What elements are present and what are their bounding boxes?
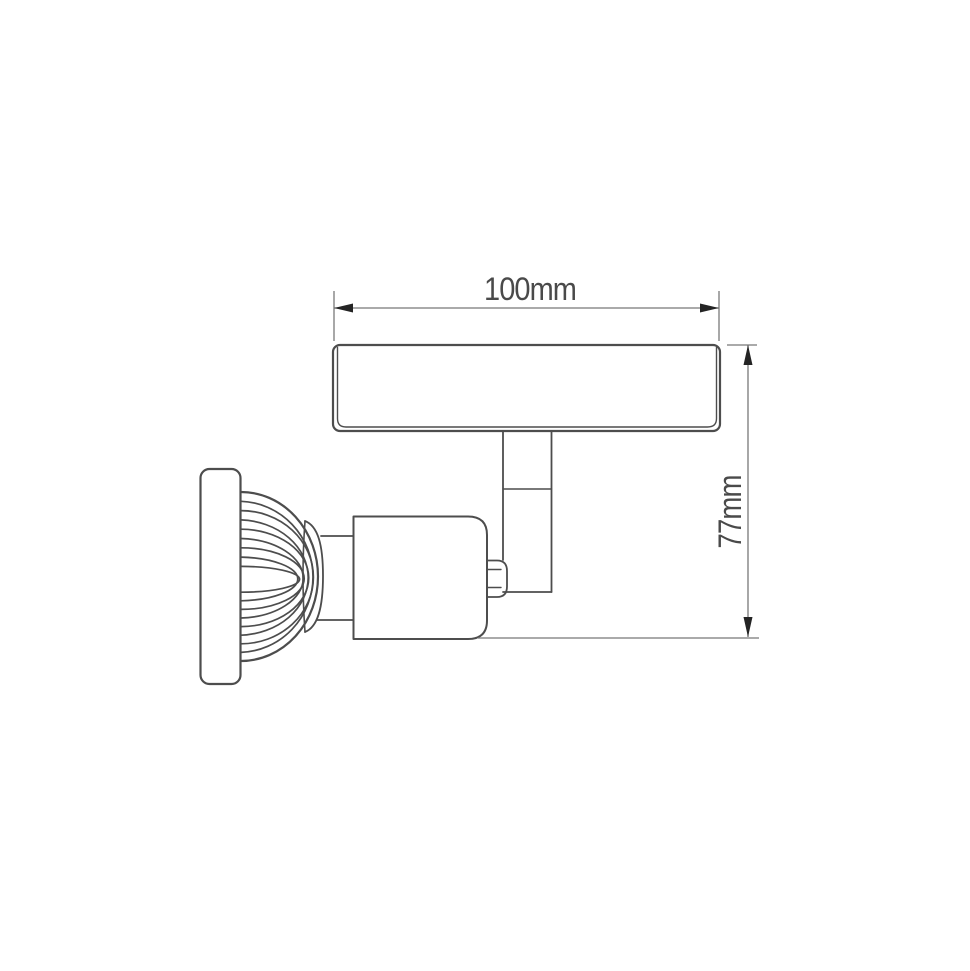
fin-arc bbox=[241, 557, 298, 601]
fixture-drawing bbox=[201, 345, 721, 684]
fin-arc bbox=[241, 492, 318, 661]
mounting-plate-outline bbox=[333, 345, 720, 431]
arrowhead-up-icon bbox=[744, 345, 753, 365]
width-dimension-label: 100mm bbox=[484, 271, 576, 307]
heatsink-fins bbox=[241, 492, 318, 661]
lamp-holder-body bbox=[354, 517, 488, 640]
arrowhead-down-icon bbox=[744, 617, 753, 637]
lamp-bezel bbox=[201, 469, 241, 684]
technical-drawing-page: 100mm 77mm bbox=[0, 0, 970, 971]
height-dimension-label: 77mm bbox=[712, 476, 748, 549]
arrowhead-left-icon bbox=[334, 304, 353, 313]
dimension-arrowheads bbox=[334, 304, 753, 638]
arrowhead-right-icon bbox=[700, 304, 719, 313]
mounting-plate-inner-line bbox=[338, 348, 717, 428]
spotlight-drawing: 100mm 77mm bbox=[0, 0, 970, 971]
dimension-annotations bbox=[334, 291, 759, 638]
